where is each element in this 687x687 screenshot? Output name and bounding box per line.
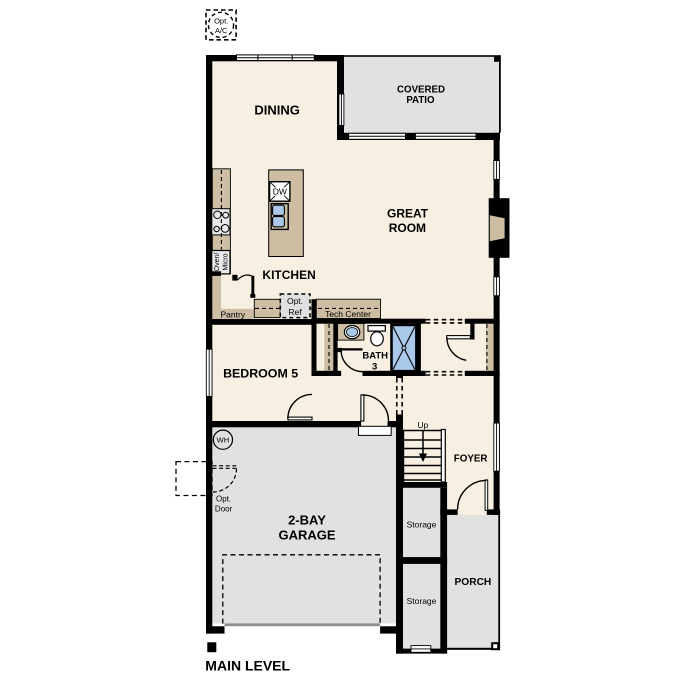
svg-text:ROOM: ROOM: [389, 221, 426, 235]
svg-text:DW: DW: [273, 187, 287, 197]
svg-text:MAIN LEVEL: MAIN LEVEL: [205, 658, 290, 674]
svg-text:Door: Door: [215, 505, 233, 514]
svg-text:Pantry: Pantry: [221, 309, 246, 319]
svg-text:Up: Up: [417, 420, 428, 430]
svg-text:FOYER: FOYER: [454, 454, 488, 465]
svg-text:Opt.: Opt.: [216, 495, 231, 504]
svg-text:Storage: Storage: [407, 519, 437, 529]
svg-text:Micro: Micro: [223, 253, 230, 270]
svg-text:Oven/: Oven/: [214, 253, 221, 272]
svg-text:Storage: Storage: [407, 596, 437, 606]
svg-text:Tech Center: Tech Center: [325, 309, 371, 319]
svg-text:PATIO: PATIO: [406, 95, 435, 106]
svg-text:BEDROOM 5: BEDROOM 5: [223, 366, 298, 380]
svg-text:Ref: Ref: [288, 307, 302, 317]
svg-text:Opt.: Opt.: [214, 17, 228, 26]
svg-text:WH: WH: [217, 436, 230, 445]
svg-text:PORCH: PORCH: [455, 577, 492, 588]
svg-text:3: 3: [372, 361, 377, 372]
svg-text:Opt.: Opt.: [287, 296, 303, 306]
svg-text:2-BAY: 2-BAY: [288, 512, 326, 527]
svg-text:DINING: DINING: [254, 103, 300, 118]
svg-text:GARAGE: GARAGE: [278, 527, 335, 542]
svg-text:BATH: BATH: [362, 351, 388, 362]
svg-text:GREAT: GREAT: [387, 207, 429, 221]
svg-text:KITCHEN: KITCHEN: [262, 268, 315, 282]
svg-text:A/C: A/C: [215, 26, 228, 35]
